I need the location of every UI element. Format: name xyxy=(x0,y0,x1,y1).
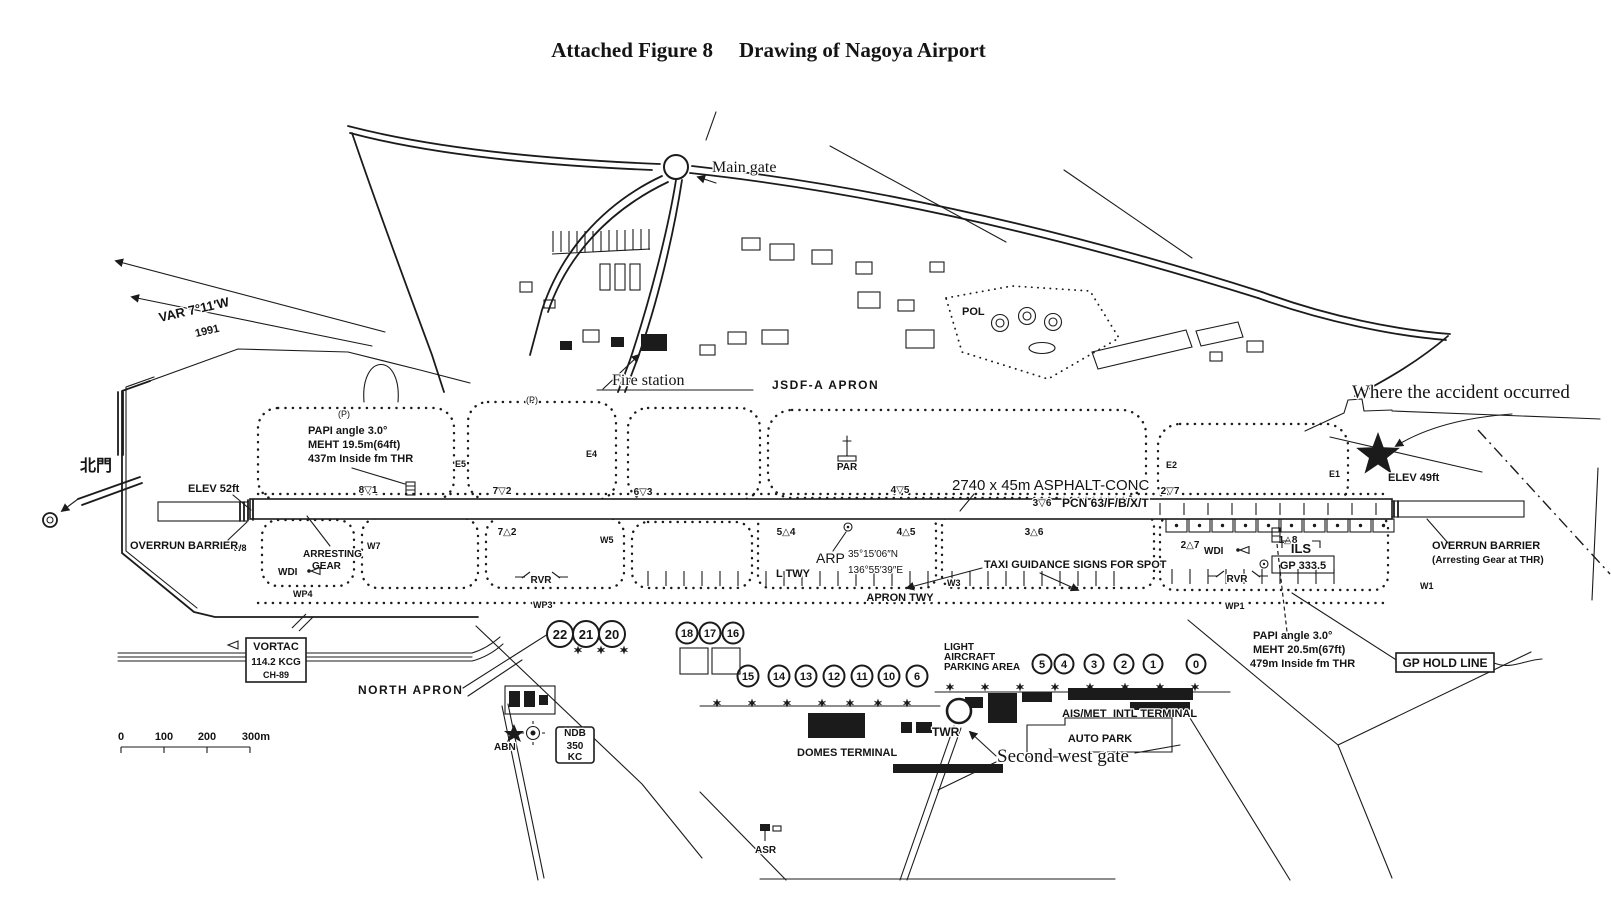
svg-text:200: 200 xyxy=(198,731,216,743)
svg-text:W7: W7 xyxy=(367,541,381,551)
svg-text:E5: E5 xyxy=(455,459,466,469)
ils-note: ILS GP 333.5 xyxy=(1260,541,1334,573)
svg-text:20: 20 xyxy=(605,627,619,642)
svg-text:22: 22 xyxy=(553,627,567,642)
svg-text:6: 6 xyxy=(914,671,920,683)
spot-circle: 17 xyxy=(700,623,721,644)
svg-text:14: 14 xyxy=(773,671,786,683)
main-gate-arrow xyxy=(698,177,716,183)
taxi-guidance-label: TAXI GUIDANCE SIGNS FOR SPOT xyxy=(984,559,1167,571)
svg-text:PAPI angle 3.0°: PAPI angle 3.0° xyxy=(308,425,387,437)
svg-text:16: 16 xyxy=(727,628,739,640)
svg-text:437m Inside fm THR: 437m Inside fm THR xyxy=(308,453,413,465)
abn-label: ABN xyxy=(494,742,516,753)
svg-text:2: 2 xyxy=(1121,659,1127,671)
svg-text:4△5: 4△5 xyxy=(897,527,916,538)
spot-circle: 6 xyxy=(907,666,928,687)
svg-text:WP4: WP4 xyxy=(293,589,313,599)
svg-text:MEHT 19.5m(64ft): MEHT 19.5m(64ft) xyxy=(308,439,401,451)
elev-west-label: ELEV 52ft xyxy=(188,483,240,495)
svg-text:7△2: 7△2 xyxy=(498,527,517,538)
fire-station-label: Fire station xyxy=(612,372,684,389)
svg-text:WP3: WP3 xyxy=(533,600,553,610)
spot-circle: 14 xyxy=(769,666,790,687)
spot-circle: 2 xyxy=(1115,655,1134,674)
svg-text:6▽3: 6▽3 xyxy=(634,487,653,498)
abn-beacon: ABN xyxy=(494,721,545,753)
svg-text:KC: KC xyxy=(568,752,582,763)
spot-circle: 0 xyxy=(1187,655,1206,674)
arresting-gear-label-2: GEAR xyxy=(312,561,342,572)
north-gate: 北門 xyxy=(43,392,142,527)
spot-circle: 18 xyxy=(677,623,698,644)
svg-text:12: 12 xyxy=(828,671,840,683)
svg-text:136°55′39″E: 136°55′39″E xyxy=(848,565,903,576)
wdi-east-label: WDI xyxy=(1204,546,1224,557)
overrun-area-east xyxy=(1392,501,1524,517)
spot-numbers: 22 21 20 18 17 16 15 14 13 12 11 10 6 5 … xyxy=(547,621,1206,687)
access-roads xyxy=(348,112,1450,402)
parking-stand-ticks xyxy=(648,571,738,586)
runway xyxy=(158,499,1524,521)
rvr-west-label: RVR xyxy=(531,575,553,586)
domes-terminal-label: DOMES TERMINAL xyxy=(797,747,898,759)
svg-text:100: 100 xyxy=(155,731,173,743)
svg-text:300m: 300m xyxy=(242,731,270,743)
p-marker-west: (P) xyxy=(338,409,350,419)
apron-twy-label: APRON TWY xyxy=(866,592,934,604)
svg-text:17: 17 xyxy=(704,628,716,640)
spot-circle: 1 xyxy=(1144,655,1163,674)
spot-circle: 3 xyxy=(1085,655,1104,674)
spot-circle: 22 xyxy=(547,621,573,647)
variation-arrows: VAR 7°11′W 1991 xyxy=(116,261,385,346)
asr-label: ASR xyxy=(755,845,777,856)
pol-area: POL xyxy=(946,286,1119,379)
svg-text:11: 11 xyxy=(856,671,868,683)
page-title: Drawing of Nagoya Airport xyxy=(739,38,986,62)
var-year-label: 1991 xyxy=(194,323,221,340)
domestic-terminal-building xyxy=(808,713,865,738)
svg-text:350: 350 xyxy=(567,741,584,752)
svg-text:MEHT 20.5m(67ft): MEHT 20.5m(67ft) xyxy=(1253,644,1346,656)
svg-text:W1: W1 xyxy=(1420,581,1434,591)
spot-circle: 5 xyxy=(1033,655,1052,674)
vortac-symbol-icon xyxy=(228,641,238,649)
arresting-gear-label-1: ARRESTING xyxy=(303,549,362,560)
overrun-east-label-1: OVERRUN BARRIER xyxy=(1432,540,1540,552)
spot-circle: 15 xyxy=(738,666,759,687)
perimeter-road xyxy=(118,614,503,661)
elev-east-label: ELEV 49ft xyxy=(1388,472,1440,484)
arp-note: ARP 35°15′06″N 136°55′39″E xyxy=(816,523,903,576)
spot-circle: 11 xyxy=(852,666,873,687)
north-apron-buildings xyxy=(505,686,555,714)
figure-label: Attached Figure 8 xyxy=(551,38,713,62)
par-radar-icon xyxy=(838,436,856,461)
windsock-east-icon xyxy=(1236,547,1249,554)
jsdf-apron-label: JSDF-A APRON xyxy=(772,378,879,392)
svg-text:4: 4 xyxy=(1061,659,1068,671)
svg-text:21: 21 xyxy=(579,627,593,642)
svg-text:ARP: ARP xyxy=(816,550,845,566)
spot-circle: 21 xyxy=(573,621,599,647)
svg-text:18: 18 xyxy=(681,628,693,640)
tower-circle-icon xyxy=(947,699,971,723)
svg-text:PARKING AREA: PARKING AREA xyxy=(944,662,1020,673)
svg-text:PAPI angle 3.0°: PAPI angle 3.0° xyxy=(1253,630,1332,642)
papi-east-leader xyxy=(1277,544,1287,632)
spot-circle: 10 xyxy=(879,666,900,687)
svg-text:0: 0 xyxy=(1193,659,1199,671)
spot-circle: 12 xyxy=(824,666,845,687)
pol-label: POL xyxy=(962,306,985,318)
taxi-guidance-leader-2 xyxy=(1040,573,1078,590)
scale-bar: 0 100 200 300m xyxy=(118,731,270,753)
arresting-gear-leader xyxy=(307,516,330,546)
vortac-note: VORTAC 114.2 KCG CH-89 xyxy=(228,638,306,682)
asr-icon xyxy=(760,824,770,831)
intl-terminal-building xyxy=(1068,688,1193,700)
overrun-east-label-2: (Arresting Gear at THR) xyxy=(1432,555,1544,566)
svg-text:ILS: ILS xyxy=(1291,541,1312,556)
spot-circle: 16 xyxy=(723,623,744,644)
accident-label: Where the accident occurred xyxy=(1352,382,1570,403)
svg-text:W3: W3 xyxy=(947,578,961,588)
overrun-area-west xyxy=(158,502,248,521)
svg-text:GP 333.5: GP 333.5 xyxy=(1280,560,1326,572)
svg-text:3△6: 3△6 xyxy=(1025,527,1044,538)
second-west-gate-label: Second west gate xyxy=(997,746,1129,767)
fuel-tank-icon xyxy=(992,308,1062,354)
light-aircraft-note: LIGHT AIRCRAFT PARKING AREA xyxy=(944,642,1020,673)
spot-circle: 20 xyxy=(599,621,625,647)
svg-text:114.2 KCG: 114.2 KCG xyxy=(251,657,301,668)
svg-text:3▽6: 3▽6 xyxy=(1033,498,1052,509)
nagoya-airport-figure: Attached Figure 8 Drawing of Nagoya Airp… xyxy=(0,0,1611,905)
par-label: PAR xyxy=(837,462,858,473)
spot-circle: 13 xyxy=(796,666,817,687)
spot-circle: 4 xyxy=(1055,655,1074,674)
svg-text:2△7: 2△7 xyxy=(1181,540,1200,551)
svg-text:CH-89: CH-89 xyxy=(263,670,289,680)
svg-text:10: 10 xyxy=(883,671,895,683)
svg-text:E2: E2 xyxy=(1166,460,1177,470)
overrun-west-label: OVERRUN BARRIER xyxy=(130,540,238,552)
north-apron-label: NORTH APRON xyxy=(358,683,463,697)
svg-text:5: 5 xyxy=(1039,659,1045,671)
svg-text:479m Inside fm THR: 479m Inside fm THR xyxy=(1250,658,1355,670)
north-gate-label: 北門 xyxy=(80,457,112,475)
svg-text:7▽2: 7▽2 xyxy=(493,486,512,497)
svg-text:8▽1: 8▽1 xyxy=(359,485,378,496)
second-west-gate-note: Second west gate xyxy=(938,732,1180,790)
accident-note: Where the accident occurred ELEV 49ft xyxy=(1305,382,1600,484)
svg-text:E1: E1 xyxy=(1329,469,1340,479)
twr-label: TWR xyxy=(932,725,960,739)
svg-text:3: 3 xyxy=(1091,659,1097,671)
svg-text:4▽5: 4▽5 xyxy=(891,485,910,496)
svg-text:VORTAC: VORTAC xyxy=(253,641,299,653)
runway-pcn-label: PCN 63/F/B/X/T xyxy=(1062,496,1149,510)
svg-text:NDB: NDB xyxy=(564,728,586,739)
svg-text:2▽7: 2▽7 xyxy=(1161,486,1180,497)
svg-text:GP HOLD LINE: GP HOLD LINE xyxy=(1402,656,1487,670)
l-twy-label: L TWY xyxy=(776,568,811,580)
svg-text:15: 15 xyxy=(742,671,754,683)
svg-text:35°15′06″N: 35°15′06″N xyxy=(848,549,898,560)
svg-text:WP1: WP1 xyxy=(1225,601,1245,611)
tower: TWR xyxy=(932,699,971,739)
svg-text:13: 13 xyxy=(800,671,812,683)
asr-note: ASR xyxy=(755,824,781,856)
airport-diagram: Attached Figure 8 Drawing of Nagoya Airp… xyxy=(0,0,1611,905)
ndb-note: NDB 350 KC xyxy=(556,727,594,763)
p-marker-mid: (P) xyxy=(526,395,538,405)
svg-text:5△4: 5△4 xyxy=(777,527,796,538)
var-label: VAR 7°11′W xyxy=(157,294,231,325)
wdi-west-label: WDI xyxy=(278,567,298,578)
svg-text:W5: W5 xyxy=(600,535,614,545)
rvr-east-label: RVR xyxy=(1227,574,1249,585)
base-buildings xyxy=(520,229,1263,369)
overrun-west-leader xyxy=(228,522,247,540)
fire-station-building xyxy=(641,334,667,351)
auto-park-label: AUTO PARK xyxy=(1068,733,1132,745)
runway-dimensions-label: 2740 x 45m ASPHALT-CONC xyxy=(952,477,1149,494)
svg-text:E4: E4 xyxy=(586,449,597,459)
main-gate-circle-icon xyxy=(664,155,688,179)
accident-star-icon xyxy=(1356,432,1400,474)
papi-east-note: PAPI angle 3.0° MEHT 20.5m(67ft) 479m In… xyxy=(1250,630,1355,670)
svg-text:1: 1 xyxy=(1150,659,1156,671)
main-gate-label: Main gate xyxy=(712,159,776,176)
svg-text:0: 0 xyxy=(118,731,124,743)
